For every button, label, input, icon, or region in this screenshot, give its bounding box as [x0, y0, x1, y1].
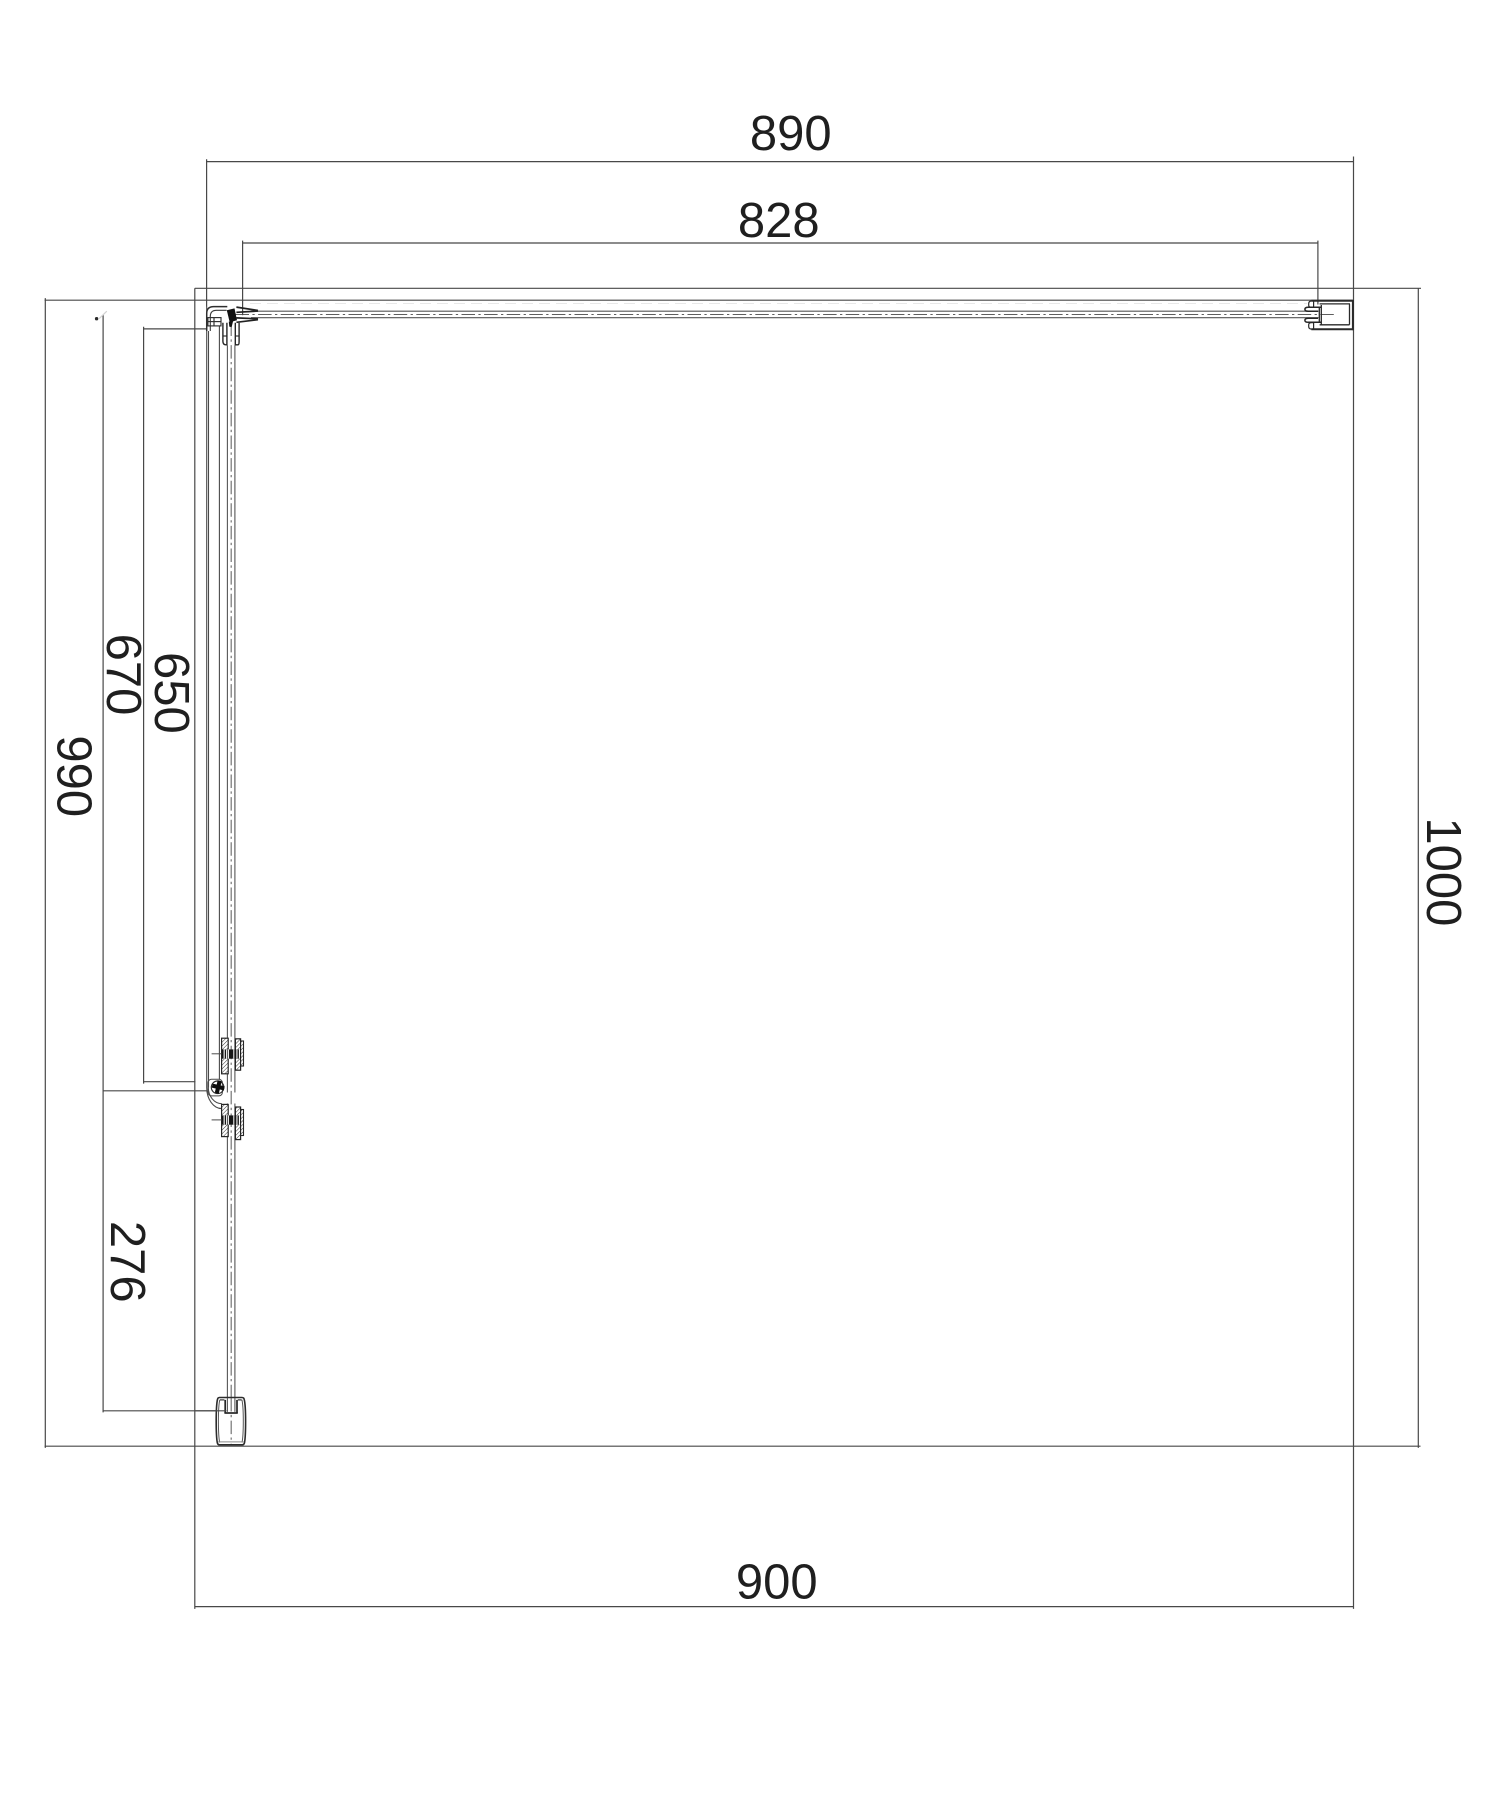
- svg-text:990: 990: [46, 735, 100, 817]
- svg-text:900: 900: [736, 1555, 818, 1609]
- svg-text:890: 890: [750, 107, 832, 161]
- svg-text:650: 650: [144, 652, 198, 734]
- svg-text:670: 670: [96, 634, 150, 716]
- svg-text:828: 828: [738, 194, 820, 248]
- svg-text:1000: 1000: [1416, 817, 1470, 926]
- svg-text:276: 276: [100, 1221, 154, 1303]
